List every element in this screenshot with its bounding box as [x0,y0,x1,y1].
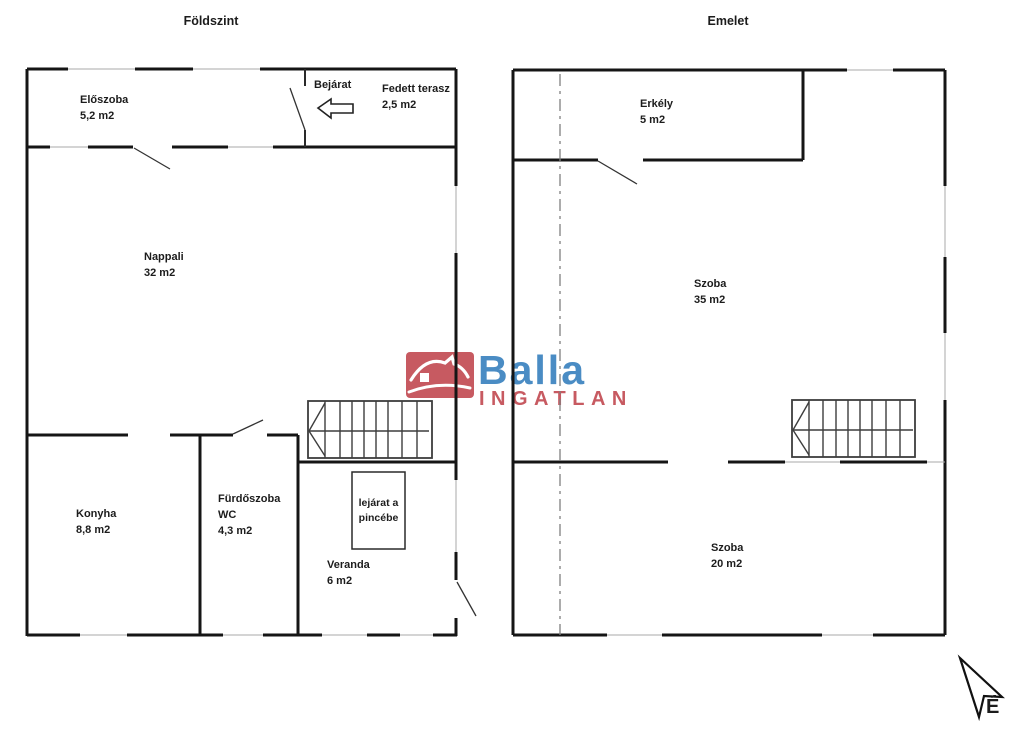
floorplan-drawing [0,0,1023,753]
room-label-nappali: Nappali 32 m2 [144,249,184,281]
bathroom-door-leaf [233,420,263,434]
room-label-lejarat-pince: lejárat a pincébe [352,472,405,549]
room-name: Szoba [711,540,743,556]
upper-floor-staircase [792,400,915,457]
room-area: 5 m2 [640,112,673,128]
room-name: Előszoba [80,92,128,108]
room-area: 20 m2 [711,556,743,572]
room-label-veranda: Veranda 6 m2 [327,557,370,589]
room-area: 2,5 m2 [382,97,450,113]
ground-floor-walls [27,69,457,636]
room-label-szoba-35: Szoba 35 m2 [694,276,726,308]
upper-floor-title: Emelet [677,13,779,29]
room-name: Veranda [327,557,370,573]
room-label-erkely: Erkély 5 m2 [640,96,673,128]
hallway-door-leaf [134,148,170,169]
room-label-eloszoba: Előszoba 5,2 m2 [80,92,128,124]
cellar-label-line1: lejárat a [359,496,399,511]
ground-floor-staircase [308,401,432,458]
room-area: 5,2 m2 [80,108,128,124]
room-area: 6 m2 [327,573,370,589]
ground-floor-title: Földszint [160,13,262,29]
room-label-fedett-terasz: Fedett terasz 2,5 m2 [382,81,450,113]
room-name: Bejárat [314,79,351,91]
entrance-arrow-icon [318,99,353,118]
room-name: Nappali [144,249,184,265]
room-name-2: WC [218,507,280,523]
room-area: 8,8 m2 [76,522,116,538]
room-area: 35 m2 [694,292,726,308]
room-label-szoba-20: Szoba 20 m2 [711,540,743,572]
room-label-konyha: Konyha 8,8 m2 [76,506,116,538]
cellar-label-line2: pincébe [359,511,399,526]
room-name: Szoba [694,276,726,292]
room-label-bejarat: Bejárat [314,77,351,93]
room-area: 32 m2 [144,265,184,281]
room-label-furdoszoba: Fürdőszoba WC 4,3 m2 [218,491,280,539]
veranda-door-leaf [457,582,476,616]
room-area: 4,3 m2 [218,523,280,539]
floorplan-page: Balla INGATLAN [0,0,1023,753]
room-name: Konyha [76,506,116,522]
room-name: Erkély [640,96,673,112]
room-name: Fedett terasz [382,81,450,97]
entrance-door-leaf [290,88,305,130]
ground-floor-doors [134,69,476,616]
north-label: É [986,696,999,718]
room-name: Fürdőszoba [218,491,280,507]
balcony-door-leaf [598,161,637,184]
